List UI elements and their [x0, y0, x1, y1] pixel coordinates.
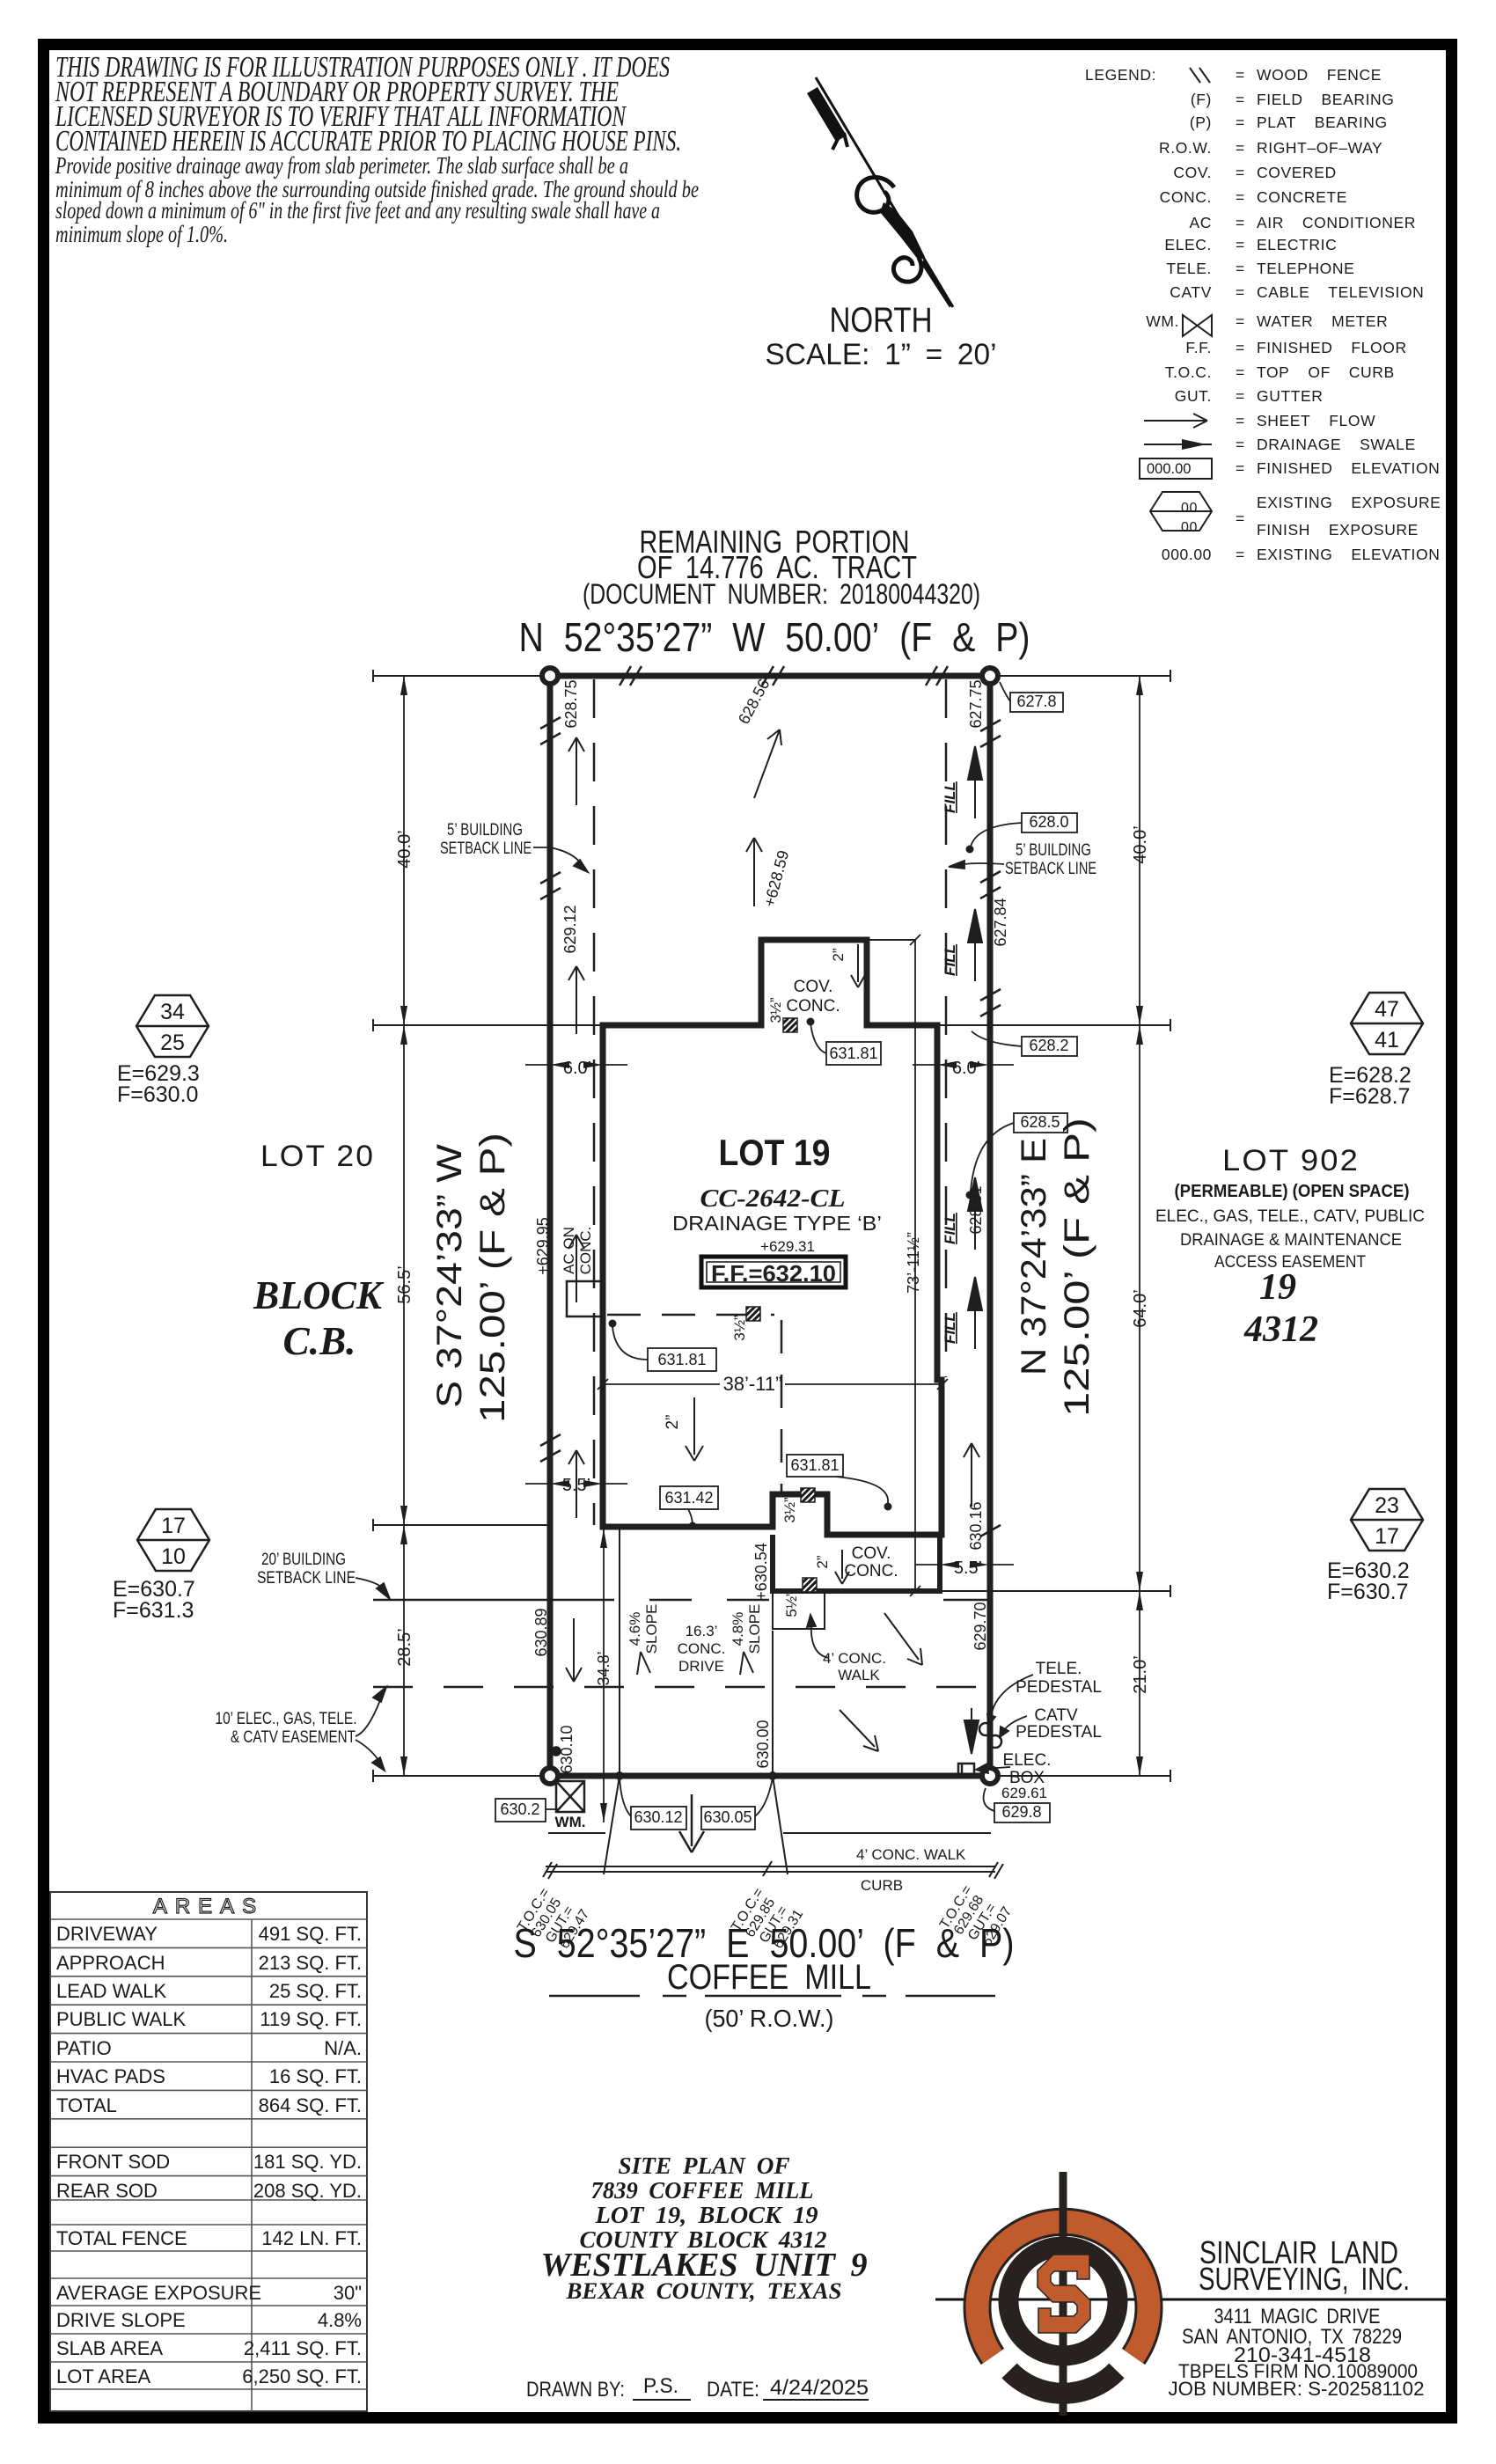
svg-text:PUBLIC WALK: PUBLIC WALK [56, 2008, 186, 2030]
svg-text:00: 00 [1181, 501, 1198, 516]
svg-text:3½”: 3½” [731, 1315, 748, 1341]
svg-text:21.0’: 21.0’ [1131, 1655, 1150, 1693]
svg-text:CONC.: CONC. [844, 1562, 898, 1580]
svg-text:47: 47 [1375, 997, 1399, 1022]
svg-text:=: = [1236, 510, 1245, 527]
svg-text:LEGEND:: LEGEND: [1085, 66, 1156, 84]
svg-text:(P): (P) [1190, 114, 1212, 131]
svg-text:WOOD FENCE: WOOD FENCE [1257, 66, 1382, 84]
svg-text:4.8%: 4.8% [730, 1612, 746, 1646]
svg-text:4.8%: 4.8% [318, 2309, 362, 2331]
svg-text:COVERED: COVERED [1257, 164, 1337, 181]
svg-text:17: 17 [161, 1514, 186, 1538]
svg-text:16.3’: 16.3’ [686, 1623, 718, 1639]
svg-text:WATER METER: WATER METER [1257, 312, 1388, 330]
svg-text:+628.59: +628.59 [760, 848, 792, 909]
svg-text:DRIVE: DRIVE [678, 1658, 724, 1675]
svg-text:40.0’: 40.0’ [1131, 825, 1150, 863]
svg-text:142 LN. FT.: 142 LN. FT. [261, 2227, 362, 2249]
svg-text:F.F.: F.F. [1185, 339, 1212, 356]
svg-text:CONC.: CONC. [577, 1227, 594, 1275]
svg-text:ELEC.: ELEC. [1164, 236, 1212, 253]
svg-text:APPROACH: APPROACH [56, 1952, 165, 1974]
svg-text:000.00: 000.00 [1147, 461, 1191, 477]
svg-text:125.00’ (F & P): 125.00’ (F & P) [473, 1133, 512, 1423]
svg-text:F.F.=632.10: F.F.=632.10 [711, 1260, 836, 1287]
svg-text:S 37°24’33” W: S 37°24’33” W [430, 1144, 469, 1408]
svg-text:2,411 SQ. FT.: 2,411 SQ. FT. [244, 2337, 362, 2359]
svg-text:627.8: 627.8 [1016, 693, 1056, 710]
svg-text:LOT 902: LOT 902 [1222, 1144, 1360, 1177]
svg-text:10: 10 [161, 1544, 186, 1569]
svg-text:DRIVE SLOPE: DRIVE SLOPE [56, 2309, 186, 2331]
svg-text:LOT AREA: LOT AREA [56, 2365, 151, 2387]
svg-text:FILL: FILL [942, 944, 958, 976]
svg-text:AC ON: AC ON [561, 1227, 577, 1274]
svg-text:491 SQ. FT.: 491 SQ. FT. [259, 1923, 362, 1945]
svg-text:T.O.C.: T.O.C. [1165, 363, 1212, 381]
svg-text:5.5’: 5.5’ [954, 1558, 982, 1578]
svg-text:COFFEE MILL: COFFEE MILL [667, 1958, 871, 1997]
svg-text:LEAD WALK: LEAD WALK [56, 1980, 166, 2002]
svg-text:630.89: 630.89 [532, 1608, 550, 1656]
svg-text:minimum slope of 1.0%.: minimum slope of 1.0%. [55, 221, 228, 247]
svg-text:2”: 2” [830, 948, 847, 961]
svg-text:631.81: 631.81 [657, 1351, 706, 1368]
svg-text:SHEET FLOW: SHEET FLOW [1257, 412, 1375, 429]
svg-text:SLOPE: SLOPE [746, 1604, 763, 1654]
svg-text:PLAT BEARING: PLAT BEARING [1257, 114, 1388, 131]
svg-text:N/A.: N/A. [324, 2037, 362, 2059]
svg-text:F=628.7: F=628.7 [1329, 1084, 1410, 1109]
svg-text:F=631.3: F=631.3 [113, 1598, 194, 1623]
svg-text:=: = [1236, 283, 1245, 301]
svg-text:PATIO: PATIO [56, 2037, 112, 2059]
svg-text:40.0’: 40.0’ [395, 830, 414, 868]
svg-text:4’ CONC. WALK: 4’ CONC. WALK [856, 1846, 966, 1863]
svg-text:(F): (F) [1191, 91, 1212, 108]
svg-text:864 SQ. FT.: 864 SQ. FT. [259, 2094, 362, 2116]
svg-text:COV.: COV. [794, 978, 833, 996]
svg-text:119 SQ. FT.: 119 SQ. FT. [260, 2008, 362, 2030]
svg-text:sloped down a minimum of 6" in: sloped down a minimum of 6" in the first… [55, 197, 660, 224]
svg-text:4.6%: 4.6% [627, 1612, 643, 1646]
svg-text:TOP OF CURB: TOP OF CURB [1257, 363, 1395, 381]
svg-text:EXISTING ELEVATION: EXISTING ELEVATION [1257, 546, 1440, 563]
svg-text:TOTAL FENCE: TOTAL FENCE [56, 2227, 187, 2249]
svg-text:JOB NUMBER: S-202581102: JOB NUMBER: S-202581102 [1169, 2378, 1425, 2400]
svg-text:AREAS: AREAS [153, 1895, 264, 1918]
svg-text:HVAC PADS: HVAC PADS [56, 2065, 165, 2087]
svg-text:=: = [1236, 387, 1245, 405]
svg-text:FIELD BEARING: FIELD BEARING [1257, 91, 1395, 108]
svg-text:CC-2642-CL: CC-2642-CL [700, 1184, 846, 1213]
svg-text:3½”: 3½” [781, 1497, 798, 1523]
svg-text:3½”: 3½” [767, 997, 784, 1023]
svg-text:LOT 20: LOT 20 [260, 1140, 375, 1173]
svg-text:AC: AC [1189, 214, 1212, 231]
svg-text:+629.95: +629.95 [534, 1217, 552, 1275]
svg-text:SLOPE: SLOPE [643, 1604, 660, 1654]
svg-text:+630.54: +630.54 [752, 1543, 770, 1601]
svg-text:COV.: COV. [852, 1544, 891, 1563]
svg-text:7839 COFFEE MILL: 7839 COFFEE MILL [591, 2177, 814, 2204]
svg-text:=: = [1236, 91, 1245, 108]
svg-text:CONC.: CONC. [1160, 188, 1212, 206]
svg-text:FINISHED FLOOR: FINISHED FLOOR [1257, 339, 1407, 356]
svg-text:DRAINAGE & MAINTENANCE: DRAINAGE & MAINTENANCE [1180, 1231, 1402, 1250]
svg-text:=: = [1236, 139, 1245, 157]
svg-text:213 SQ. FT.: 213 SQ. FT. [259, 1952, 362, 1974]
svg-text:SETBACK LINE: SETBACK LINE [1005, 860, 1096, 878]
svg-text:=: = [1236, 164, 1245, 181]
svg-text:DRAINAGE TYPE ‘B’: DRAINAGE TYPE ‘B’ [672, 1212, 882, 1235]
svg-text:627.84: 627.84 [992, 898, 1009, 946]
svg-text:73’-11½”: 73’-11½” [905, 1232, 922, 1294]
svg-text:23: 23 [1375, 1493, 1399, 1518]
svg-text:(PERMEABLE) (OPEN SPACE): (PERMEABLE) (OPEN SPACE) [1175, 1182, 1410, 1201]
svg-text:F=630.7: F=630.7 [1327, 1580, 1408, 1604]
svg-text:ELECTRIC: ELECTRIC [1257, 236, 1337, 253]
svg-text:FILL: FILL [942, 781, 958, 813]
svg-text:=: = [1236, 339, 1245, 356]
svg-text:125.00’ (F & P): 125.00’ (F & P) [1058, 1118, 1096, 1417]
svg-text:30": 30" [334, 2282, 362, 2304]
svg-text:=: = [1236, 436, 1245, 453]
svg-text:181 SQ. YD.: 181 SQ. YD. [253, 2151, 362, 2173]
svg-text:=: = [1236, 66, 1245, 84]
svg-text:2”: 2” [664, 1415, 682, 1430]
svg-text:CATV: CATV [1034, 1706, 1078, 1725]
svg-text:+629.31: +629.31 [760, 1238, 815, 1255]
svg-text:GUTTER: GUTTER [1257, 387, 1324, 405]
svg-text:N 52°35’27” W 50.00’ (F & P): N 52°35’27” W 50.00’ (F & P) [519, 614, 1030, 660]
svg-text:ELEC., GAS, TELE., CATV, PUBLI: ELEC., GAS, TELE., CATV, PUBLIC [1155, 1207, 1425, 1226]
svg-text:SURVEYING, INC.: SURVEYING, INC. [1199, 2261, 1410, 2297]
svg-text:=: = [1236, 114, 1245, 131]
svg-text:DATE:: DATE: [707, 2378, 759, 2402]
svg-text:WM.: WM. [555, 1814, 586, 1830]
svg-text:SITE PLAN OF: SITE PLAN OF [619, 2152, 790, 2179]
svg-text:000.00: 000.00 [1162, 546, 1212, 563]
svg-text:FILL: FILL [942, 1213, 958, 1244]
svg-text:SETBACK LINE: SETBACK LINE [440, 840, 532, 858]
svg-text:(DOCUMENT NUMBER: 20180044320): (DOCUMENT NUMBER: 20180044320) [583, 578, 980, 610]
svg-text:6,250 SQ. FT.: 6,250 SQ. FT. [242, 2365, 362, 2387]
svg-text:DRAWN BY:: DRAWN BY: [526, 2378, 625, 2402]
svg-text:2”: 2” [814, 1555, 831, 1568]
svg-text:R.O.W.: R.O.W. [1159, 139, 1212, 157]
svg-text:6.0’: 6.0’ [952, 1059, 980, 1078]
svg-text:Provide positive drainage away: Provide positive drainage away from slab… [55, 152, 628, 179]
svg-text:629.12: 629.12 [561, 905, 579, 953]
svg-text:19: 19 [1259, 1267, 1296, 1308]
svg-text:628.56: 628.56 [735, 676, 774, 727]
svg-text:631.81: 631.81 [829, 1045, 877, 1062]
svg-text:5’ BUILDING: 5’ BUILDING [1016, 841, 1091, 860]
svg-text:CABLE TELEVISION: CABLE TELEVISION [1257, 283, 1424, 301]
svg-text:AIR CONDITIONER: AIR CONDITIONER [1257, 214, 1416, 231]
svg-text:CONC.: CONC. [678, 1640, 726, 1657]
svg-text:BLOCK: BLOCK [253, 1272, 385, 1317]
svg-text:DRIVEWAY: DRIVEWAY [56, 1923, 158, 1945]
svg-text:5.5’: 5.5’ [562, 1476, 590, 1495]
svg-text:17: 17 [1375, 1524, 1399, 1549]
svg-text:10’ ELEC., GAS, TELE.: 10’ ELEC., GAS, TELE. [216, 1710, 357, 1728]
svg-text:CONCRETE: CONCRETE [1257, 188, 1347, 206]
svg-text:RIGHT–OF–WAY: RIGHT–OF–WAY [1257, 139, 1382, 157]
svg-text:25 SQ. FT.: 25 SQ. FT. [269, 1980, 362, 2002]
svg-text:629.70: 629.70 [972, 1602, 989, 1650]
svg-text:628.2: 628.2 [1029, 1037, 1068, 1054]
svg-text:TELEPHONE: TELEPHONE [1257, 260, 1354, 277]
svg-text:34.8’: 34.8’ [595, 1651, 612, 1685]
svg-text:=: = [1236, 412, 1245, 429]
svg-text:P.S.: P.S. [643, 2374, 678, 2398]
svg-text:20’ BUILDING: 20’ BUILDING [261, 1551, 346, 1569]
svg-text:00: 00 [1181, 520, 1198, 535]
svg-text:630.16: 630.16 [967, 1501, 985, 1550]
svg-text:628.0: 628.0 [1029, 813, 1068, 831]
svg-text:628.51: 628.51 [967, 1185, 985, 1234]
svg-text:PEDESTAL: PEDESTAL [1016, 1678, 1102, 1697]
svg-text:N 37°24’33” E: N 37°24’33” E [1015, 1138, 1053, 1375]
svg-text:BOX: BOX [1009, 1769, 1045, 1787]
svg-text:NORTH: NORTH [830, 301, 933, 340]
svg-text:FINISHED ELEVATION: FINISHED ELEVATION [1257, 459, 1440, 477]
svg-text:4’ CONC.: 4’ CONC. [823, 1650, 886, 1667]
svg-text:630.05: 630.05 [703, 1808, 752, 1826]
svg-text:FRONT SOD: FRONT SOD [56, 2151, 170, 2173]
svg-text:TELE.: TELE. [1166, 260, 1212, 277]
svg-text:AVERAGE EXPOSURE: AVERAGE EXPOSURE [56, 2282, 261, 2304]
svg-text:630.2: 630.2 [500, 1800, 539, 1818]
svg-text:628.75: 628.75 [562, 679, 580, 728]
svg-text:=: = [1236, 312, 1245, 330]
svg-text:628.5: 628.5 [1020, 1113, 1060, 1131]
svg-text:F=630.0: F=630.0 [117, 1082, 198, 1107]
svg-text:SCALE: 1” = 20’: SCALE: 1” = 20’ [766, 338, 997, 371]
svg-text:629.8: 629.8 [1001, 1803, 1041, 1821]
svg-text:28.5’: 28.5’ [395, 1628, 414, 1666]
svg-text:631.81: 631.81 [790, 1456, 839, 1474]
svg-text:DRAINAGE SWALE: DRAINAGE SWALE [1257, 436, 1416, 453]
svg-text:=: = [1236, 236, 1245, 253]
svg-text:BEXAR COUNTY, TEXAS: BEXAR COUNTY, TEXAS [565, 2278, 841, 2304]
svg-text:630.10: 630.10 [558, 1725, 576, 1773]
svg-text:4312: 4312 [1243, 1309, 1318, 1350]
svg-text:REAR SOD: REAR SOD [56, 2180, 158, 2202]
svg-text:PEDESTAL: PEDESTAL [1016, 1723, 1102, 1742]
svg-text:627.75: 627.75 [967, 679, 985, 728]
svg-text:41: 41 [1375, 1028, 1399, 1052]
svg-text:208 SQ. YD.: 208 SQ. YD. [253, 2180, 362, 2202]
svg-text:=: = [1236, 546, 1245, 563]
svg-text:CURB: CURB [861, 1877, 903, 1894]
svg-text:GUT.: GUT. [1175, 387, 1212, 405]
svg-text:5’ BUILDING: 5’ BUILDING [447, 821, 523, 840]
svg-text:TELE.: TELE. [1036, 1660, 1082, 1678]
svg-text:EXISTING EXPOSURE: EXISTING EXPOSURE [1257, 494, 1441, 511]
svg-text:=: = [1236, 260, 1245, 277]
svg-text:64.0’: 64.0’ [1131, 1289, 1150, 1327]
svg-text:16 SQ. FT.: 16 SQ. FT. [269, 2065, 362, 2087]
svg-text:SLAB AREA: SLAB AREA [56, 2337, 163, 2359]
svg-text:=: = [1236, 188, 1245, 206]
svg-text:=: = [1236, 214, 1245, 231]
svg-text:5½”: 5½” [783, 1591, 800, 1617]
svg-text:=: = [1236, 459, 1245, 477]
svg-text:4/24/2025: 4/24/2025 [770, 2376, 869, 2400]
svg-text:WALK: WALK [838, 1667, 880, 1683]
svg-text:34: 34 [160, 1000, 185, 1024]
svg-text:WM.: WM. [1146, 312, 1179, 330]
svg-text:COV.: COV. [1173, 164, 1212, 181]
svg-text:C.B.: C.B. [283, 1318, 356, 1363]
svg-text:FILL: FILL [942, 1312, 958, 1344]
svg-text:630.12: 630.12 [634, 1808, 682, 1826]
svg-text:25: 25 [160, 1030, 185, 1055]
svg-text:=: = [1236, 363, 1245, 381]
svg-text:& CATV EASEMENT: & CATV EASEMENT [231, 1728, 356, 1747]
svg-text:TOTAL: TOTAL [56, 2094, 117, 2116]
svg-text:LOT 19, BLOCK 19: LOT 19, BLOCK 19 [594, 2202, 818, 2228]
svg-text:FINISH EXPOSURE: FINISH EXPOSURE [1257, 521, 1419, 539]
svg-text:631.42: 631.42 [664, 1489, 713, 1507]
svg-text:630.00: 630.00 [754, 1720, 772, 1768]
svg-text:38’-11”: 38’-11” [723, 1373, 782, 1395]
svg-text:SETBACK LINE: SETBACK LINE [257, 1569, 356, 1588]
svg-text:CONC.: CONC. [786, 997, 840, 1016]
svg-text:ELEC.: ELEC. [1003, 1751, 1052, 1770]
svg-text:56.5’: 56.5’ [395, 1265, 414, 1303]
svg-text:6.0’: 6.0’ [563, 1059, 591, 1078]
svg-text:CATV: CATV [1170, 283, 1212, 301]
svg-text:LOT 19: LOT 19 [719, 1132, 831, 1173]
svg-text:(50’ R.O.W.): (50’ R.O.W.) [705, 2005, 834, 2032]
